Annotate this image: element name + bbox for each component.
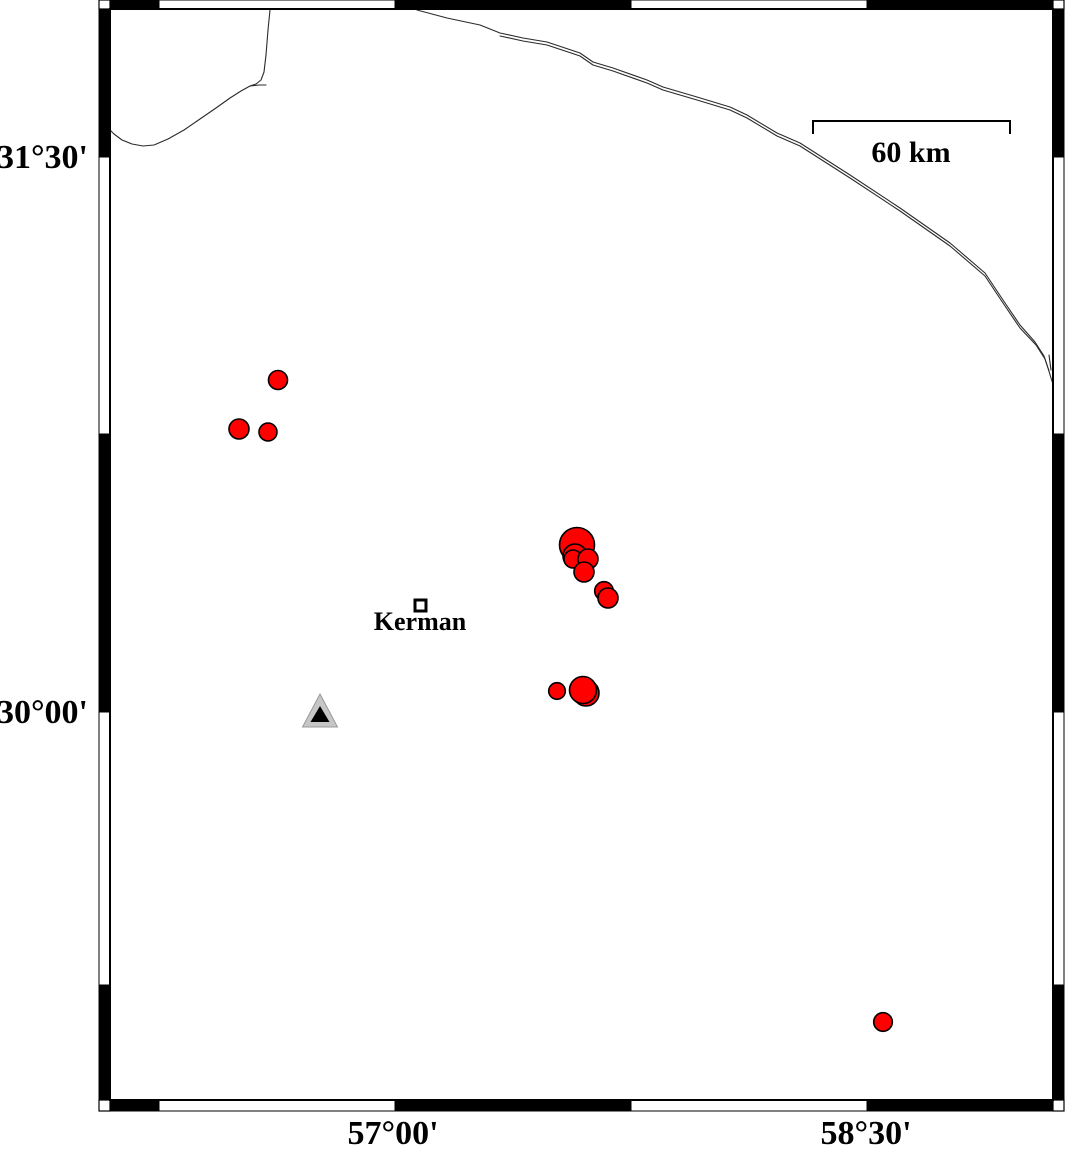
frame-corner <box>1053 1100 1064 1111</box>
frame-segment-top <box>159 0 395 9</box>
frame-segment-left <box>99 157 110 434</box>
frame-segment-top <box>631 0 867 9</box>
map-figure: 60 km Kerman 31°30'30°00'57°00'58°30' <box>0 0 1066 1150</box>
frame-segment-bottom <box>395 1100 631 1111</box>
latitude-label: 31°30' <box>0 139 88 176</box>
longitude-label: 58°30' <box>820 1115 911 1150</box>
map-canvas: 60 km Kerman 31°30'30°00'57°00'58°30' <box>0 0 1066 1150</box>
frame-segment-bottom <box>867 1100 1053 1111</box>
frame-segment-top <box>867 0 1053 9</box>
epicenter-marker <box>598 588 618 608</box>
frame-segment-left <box>99 434 110 712</box>
epicenter-marker <box>574 562 594 582</box>
frame-segment-bottom <box>159 1100 395 1111</box>
frame-segment-bottom <box>631 1100 867 1111</box>
frame-segment-right <box>1053 9 1064 157</box>
frame-segment-right <box>1053 434 1064 712</box>
epicenter-marker <box>259 423 277 441</box>
epicenter-marker <box>570 677 597 704</box>
scale-bar-label: 60 km <box>871 136 950 169</box>
frame-segment-left <box>99 9 110 157</box>
epicenter-marker <box>229 419 249 439</box>
background-layer <box>0 0 1066 1150</box>
frame-segment-top <box>110 0 159 9</box>
longitude-label: 57°00' <box>347 1115 438 1150</box>
frame-segment-left <box>99 985 110 1100</box>
map-background <box>0 0 1066 1150</box>
frame-corner <box>99 1100 110 1111</box>
frame-segment-right <box>1053 157 1064 434</box>
frame-segment-right <box>1053 985 1064 1100</box>
epicenter-marker <box>549 683 566 700</box>
city-label: Kerman <box>374 607 467 636</box>
frame-corner <box>1053 0 1064 9</box>
frame-segment-top <box>395 0 631 9</box>
frame-segment-right <box>1053 712 1064 985</box>
frame-segment-bottom <box>110 1100 159 1111</box>
frame-corner <box>99 0 110 9</box>
epicenter-marker <box>269 371 288 390</box>
latitude-label: 30°00' <box>0 694 88 731</box>
epicenter-marker <box>874 1013 893 1032</box>
frame-segment-left <box>99 712 110 985</box>
